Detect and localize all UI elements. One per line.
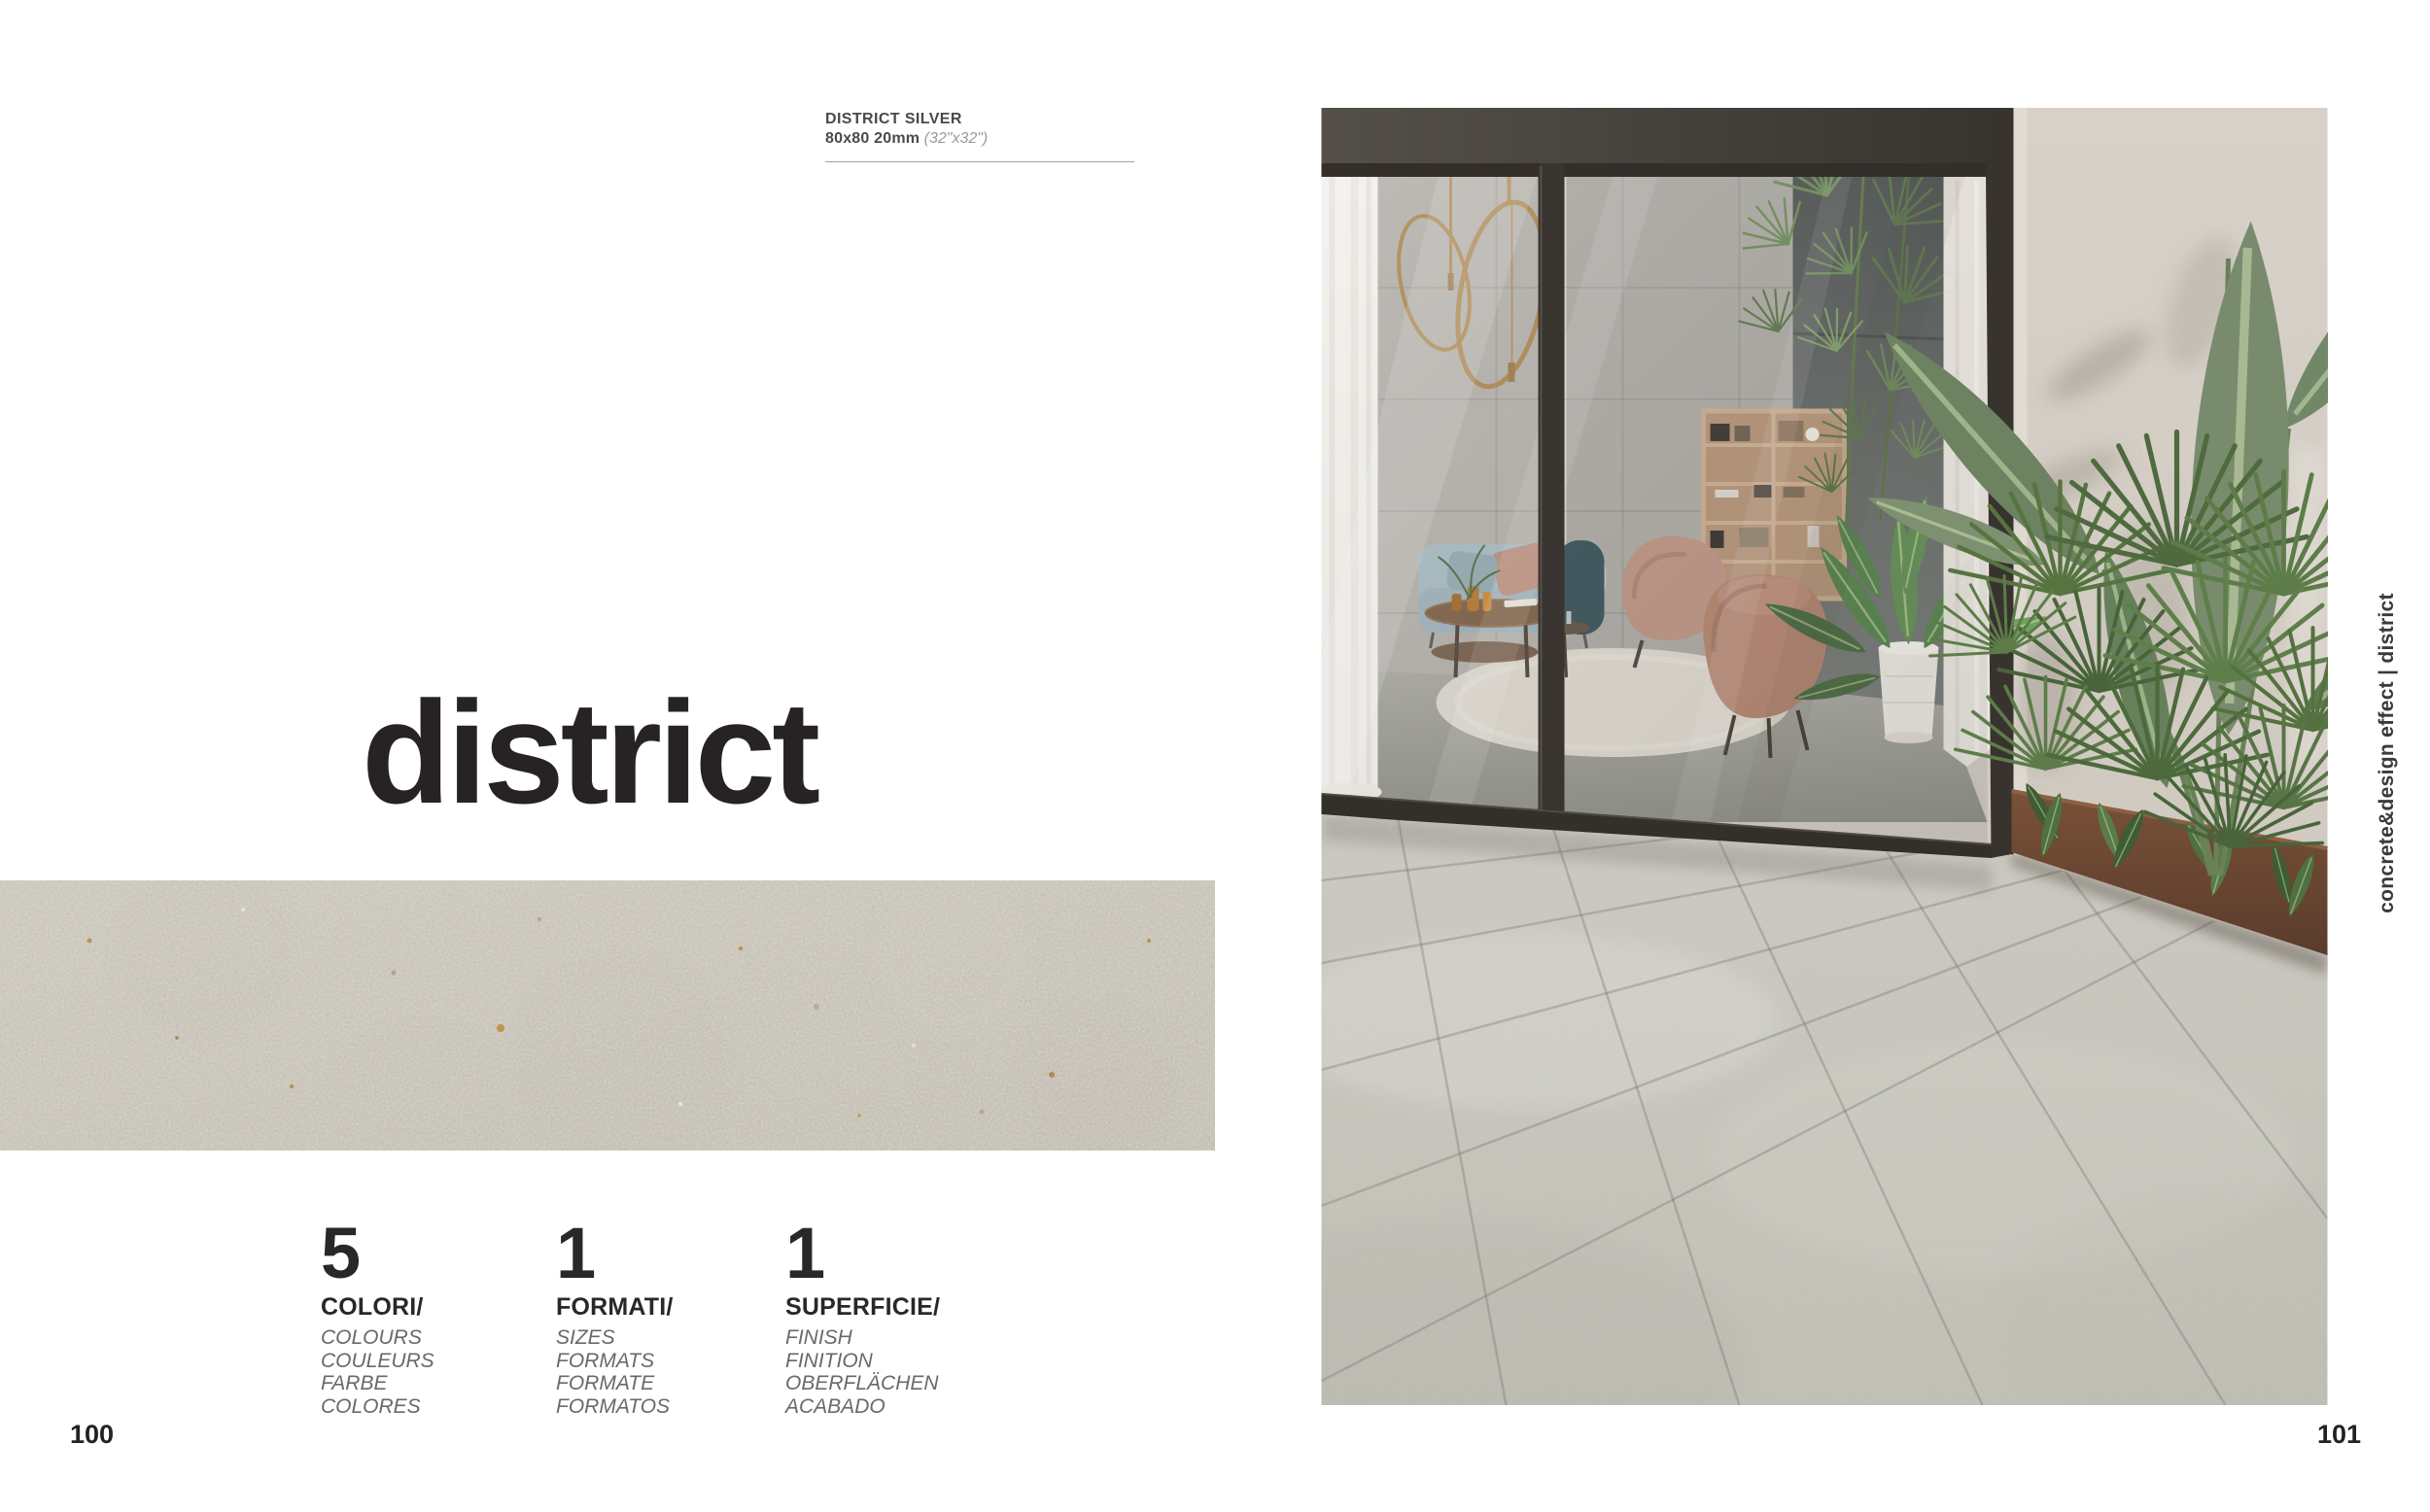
page-title: district: [362, 679, 816, 825]
stat-colours: 5 COLORI/ COLOURS COULEURS FARBE COLORES: [321, 1227, 544, 1418]
frame-top-strip: [1322, 108, 2014, 164]
tile-swatch-image: [0, 880, 1215, 1151]
frame-mullion-middle: [1539, 163, 1565, 829]
caption-divider: [825, 161, 1134, 162]
ambient-photo: [1321, 108, 2328, 1405]
stat-colours-label: COLORI/: [321, 1293, 544, 1322]
stat-finish: 1 SUPERFICIE/ FINISH FINITION OBERFLÄCHE…: [785, 1227, 1009, 1418]
product-size-inches: (32"x32"): [924, 130, 989, 147]
page-number-right: 101: [2317, 1420, 2361, 1450]
stat-sizes-label: FORMATI/: [556, 1293, 780, 1322]
product-size: 80x80 20mm (32"x32"): [825, 129, 988, 149]
interior-scene: [1321, 108, 2053, 846]
stat-finish-label: SUPERFICIE/: [785, 1293, 1009, 1322]
product-caption: DISTRICT SILVER 80x80 20mm (32"x32"): [825, 110, 988, 149]
frame-top-bar: [1322, 163, 2014, 177]
stat-sizes-number: 1: [556, 1227, 780, 1280]
stat-finish-translations: FINISH FINITION OBERFLÄCHEN ACABADO: [785, 1326, 1009, 1418]
stat-sizes-translations: SIZES FORMATS FORMATE FORMATOS: [556, 1326, 780, 1418]
product-name: DISTRICT SILVER: [825, 110, 988, 129]
stat-finish-number: 1: [785, 1227, 1009, 1280]
page-number-left: 100: [70, 1420, 114, 1450]
stat-sizes: 1 FORMATI/ SIZES FORMATS FORMATE FORMATO…: [556, 1227, 780, 1418]
collection-sidebar-text: concrete&design effect | district: [2376, 588, 2399, 918]
stat-colours-number: 5: [321, 1227, 544, 1280]
stat-colours-translations: COLOURS COULEURS FARBE COLORES: [321, 1326, 544, 1418]
